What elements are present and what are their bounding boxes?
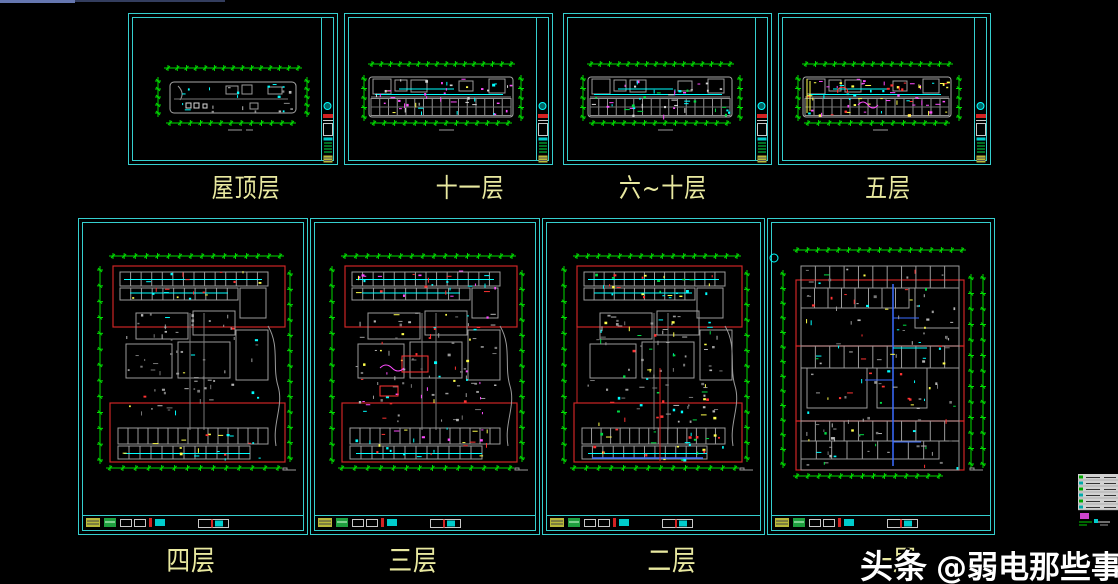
floorplan-drawing-floor-2 [542, 218, 765, 535]
watermark-brand-text: 头条 [860, 547, 928, 584]
floorplan-drawing-floor-5 [778, 13, 991, 165]
floorplan-drawing-floor-4 [78, 218, 308, 535]
sheet-floor-1[interactable] [767, 218, 995, 535]
sheet-label-floor-2[interactable]: 二层 [647, 546, 696, 575]
sheet-label-floor-4[interactable]: 四层 [166, 546, 215, 575]
window-edge-fragment-bright [0, 0, 75, 3]
floorplan-drawing-floor-3 [310, 218, 540, 535]
sheet-floor-3[interactable] [310, 218, 540, 535]
floorplan-drawing-floor-6-10 [563, 13, 772, 165]
sheet-label-floor-6-10[interactable]: 六~十层 [619, 176, 707, 203]
floorplan-drawing-floor-11 [344, 13, 553, 165]
watermark-handle-text: @弱电那些事 [936, 550, 1118, 584]
floorplan-drawing-floor-1 [767, 218, 995, 535]
sheet-label-floor-3[interactable]: 三层 [388, 546, 437, 575]
sheet-floor-2[interactable] [542, 218, 765, 535]
sheet-label-floor-5[interactable]: 五层 [865, 176, 911, 203]
sheet-floor-11[interactable] [344, 13, 553, 165]
sheet-floor-6-10[interactable] [563, 13, 772, 165]
sheet-floor-4[interactable] [78, 218, 308, 535]
legend-table[interactable] [1078, 474, 1118, 528]
window-edge-fragment-dim [75, 0, 225, 2]
watermark: 头条@弱电那些事 [860, 540, 1118, 584]
sheet-roof[interactable] [128, 13, 338, 165]
floorplan-drawing-roof [128, 13, 338, 165]
sheet-floor-5[interactable] [778, 13, 991, 165]
sheet-label-floor-11[interactable]: 十一层 [436, 176, 505, 203]
drawing-canvas[interactable]: 屋顶层十一层六~十层五层四层三层二层一层 头条@弱电那些事 [0, 0, 1118, 584]
sheet-label-roof[interactable]: 屋顶层 [212, 176, 281, 203]
